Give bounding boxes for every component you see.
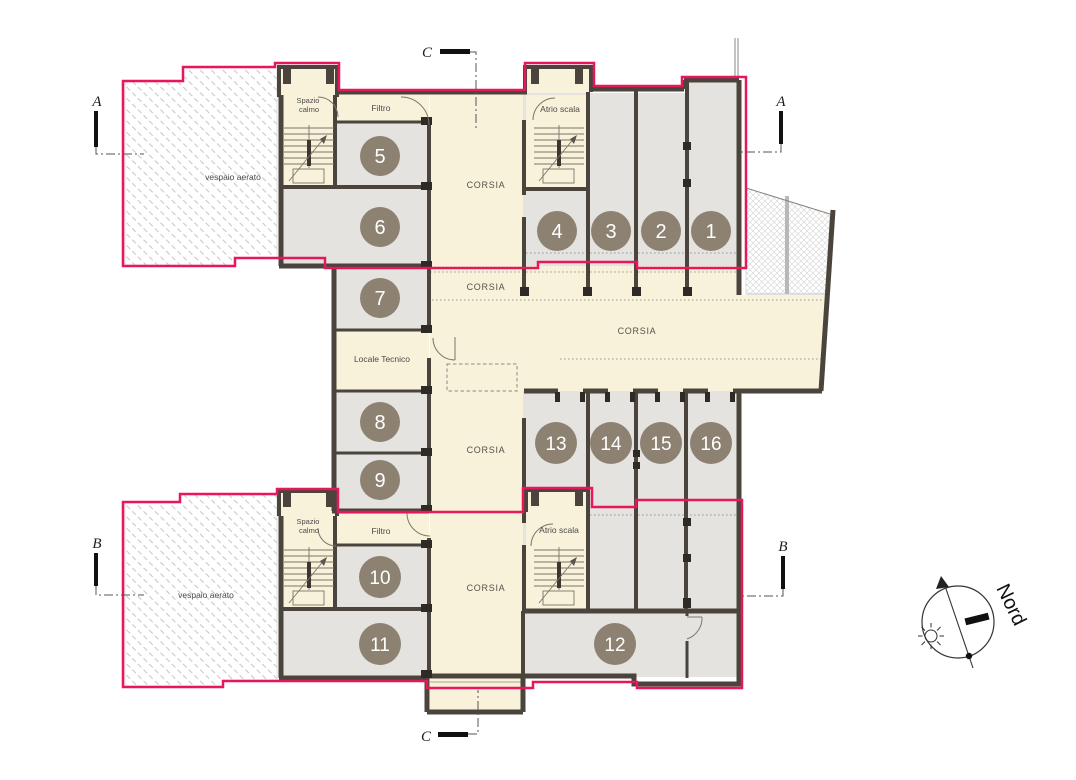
svg-text:11: 11 xyxy=(370,635,390,656)
room-4: 4 xyxy=(537,211,577,251)
svg-text:3: 3 xyxy=(605,221,616,243)
room-8: 8 xyxy=(360,402,400,442)
svg-text:4: 4 xyxy=(551,221,562,243)
svg-text:16: 16 xyxy=(700,434,721,455)
label-corsia-3: CORSIA xyxy=(618,326,657,336)
hatched-wedge-right xyxy=(746,188,830,294)
room-6: 6 xyxy=(360,207,400,247)
svg-text:10: 10 xyxy=(369,568,390,589)
svg-text:B: B xyxy=(778,539,787,555)
label-vespaio-top: vespaio aerato xyxy=(205,172,261,182)
svg-text:8: 8 xyxy=(374,412,385,434)
room-9: 9 xyxy=(360,460,400,500)
room-3: 3 xyxy=(591,211,631,251)
room-2: 2 xyxy=(641,211,681,251)
label-spazio-calmo-bottom: Spazio calmo xyxy=(296,517,321,535)
svg-text:5: 5 xyxy=(374,146,385,168)
svg-text:6: 6 xyxy=(374,217,385,239)
label-corsia-2: CORSIA xyxy=(467,282,506,292)
room-14: 14 xyxy=(590,422,632,464)
room-13: 13 xyxy=(535,422,577,464)
room-12: 12 xyxy=(594,623,636,665)
room-1: 1 xyxy=(691,211,731,251)
svg-text:7: 7 xyxy=(374,288,385,310)
floor-plan-page: 1 2 3 4 5 6 7 8 9 10 11 12 13 14 15 16 S… xyxy=(0,0,1076,780)
label-atrio-scala-bottom: Atrio scala xyxy=(539,525,579,535)
room-16: 16 xyxy=(690,422,732,464)
label-corsia-4: CORSIA xyxy=(467,445,506,455)
room-10: 10 xyxy=(359,556,401,598)
sun-icon xyxy=(918,623,944,649)
floor-plan-canvas: 1 2 3 4 5 6 7 8 9 10 11 12 13 14 15 16 S… xyxy=(0,0,1076,780)
svg-text:2: 2 xyxy=(655,221,666,243)
svg-text:12: 12 xyxy=(604,635,625,656)
section-marker-b-right: B xyxy=(740,539,788,596)
room-11: 11 xyxy=(359,623,401,665)
label-filtro-top: Filtro xyxy=(372,103,391,113)
vespaio-area-top xyxy=(125,68,277,265)
svg-text:C: C xyxy=(421,729,432,745)
svg-text:9: 9 xyxy=(374,470,385,492)
svg-text:1: 1 xyxy=(705,221,716,243)
label-spazio-calmo-top: Spazio calmo xyxy=(296,96,321,114)
room-7: 7 xyxy=(360,278,400,318)
room-15: 15 xyxy=(640,422,682,464)
label-locale-tecnico: Locale Tecnico xyxy=(354,354,410,364)
svg-text:13: 13 xyxy=(545,434,566,455)
svg-text:A: A xyxy=(91,94,102,110)
label-corsia-1: CORSIA xyxy=(467,180,506,190)
label-filtro-bottom: Filtro xyxy=(372,526,391,536)
label-corsia-5: CORSIA xyxy=(467,583,506,593)
svg-text:14: 14 xyxy=(600,434,622,455)
label-atrio-scala-top: Atrio scala xyxy=(540,104,580,114)
svg-text:B: B xyxy=(92,536,101,552)
north-arrow: Nord xyxy=(918,576,1030,668)
svg-text:A: A xyxy=(775,94,786,110)
label-nord: Nord xyxy=(992,581,1031,630)
label-vespaio-bottom: vespaio aerato xyxy=(178,590,234,600)
room-5: 5 xyxy=(360,136,400,176)
north-arrowhead xyxy=(936,576,949,589)
svg-text:15: 15 xyxy=(650,434,671,455)
svg-text:C: C xyxy=(422,45,433,61)
